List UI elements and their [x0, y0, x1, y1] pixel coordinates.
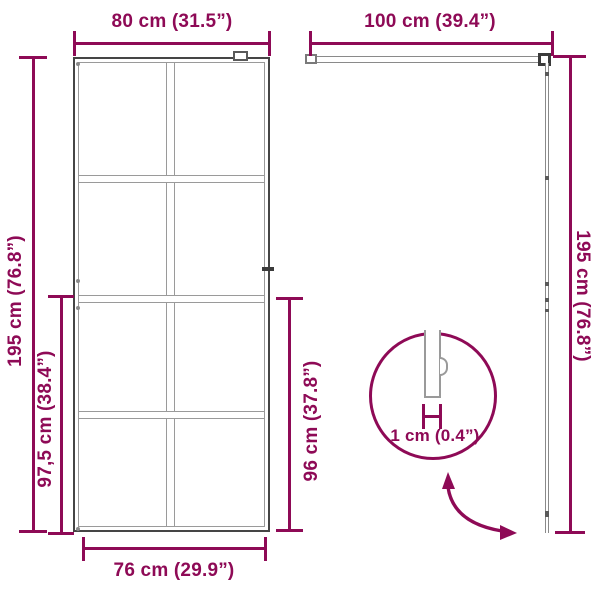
glass-mark	[545, 176, 549, 180]
front-height-tick-top	[19, 56, 47, 59]
glass-mark	[545, 309, 549, 312]
front-partial-left-label: 97,5 cm (38.4”)	[35, 279, 57, 559]
side-width-tick-left	[309, 31, 312, 56]
front-partial-right-label: 96 cm (37.8”)	[301, 281, 323, 561]
glass-mark	[545, 72, 549, 76]
front-width-tick-right	[268, 31, 271, 56]
glass-mark	[545, 282, 549, 286]
screw-dot	[76, 62, 80, 66]
side-width-tick-right	[551, 31, 554, 56]
glass-bottom-seal	[545, 511, 549, 517]
front-height-label: 195 cm (76.8”)	[5, 161, 27, 441]
side-height-tick-bottom	[555, 531, 585, 534]
front-bottom-width-dimension-line	[83, 547, 267, 550]
thickness-dimension-line	[422, 415, 442, 418]
door-divider-2	[79, 295, 264, 303]
door-top-roller-tab	[233, 51, 248, 61]
front-bottom-width-label: 76 cm (29.9”)	[54, 560, 294, 582]
door-front-view	[73, 57, 270, 532]
magnify-arrow-icon	[430, 460, 530, 545]
front-partial-right-tick-top	[276, 297, 303, 300]
side-height-label: 195 cm (76.8”)	[571, 156, 593, 436]
glass-mark	[545, 298, 549, 302]
front-partial-right-dimension-line	[288, 298, 291, 532]
screw-dot	[76, 306, 80, 310]
front-bottom-width-tick-left	[82, 537, 85, 561]
screw-dot	[76, 527, 80, 531]
screw-dot	[76, 279, 80, 283]
front-width-label: 80 cm (31.5”)	[52, 11, 292, 33]
door-divider-1	[79, 175, 264, 183]
detail-glass-profile	[424, 330, 441, 398]
side-height-tick-top	[553, 55, 586, 58]
door-right-frame-clamp	[262, 267, 274, 271]
front-partial-left-dimension-line	[60, 296, 63, 534]
side-width-dimension-line	[310, 42, 553, 45]
thickness-label: 1 cm (0.4”)	[355, 426, 515, 446]
arrowhead-up	[442, 472, 455, 489]
arrowhead-right	[500, 525, 517, 540]
front-width-tick-left	[73, 31, 76, 56]
front-bottom-width-tick-right	[264, 537, 267, 561]
front-partial-right-tick-bottom	[276, 529, 303, 532]
side-width-label: 100 cm (39.4”)	[300, 11, 560, 33]
dimension-diagram: 80 cm (31.5”) 195 cm (76.8”) 97,5 cm (38…	[0, 0, 600, 600]
side-view-top-rail	[307, 56, 549, 63]
front-width-dimension-line	[74, 42, 271, 45]
door-divider-3	[79, 411, 264, 419]
